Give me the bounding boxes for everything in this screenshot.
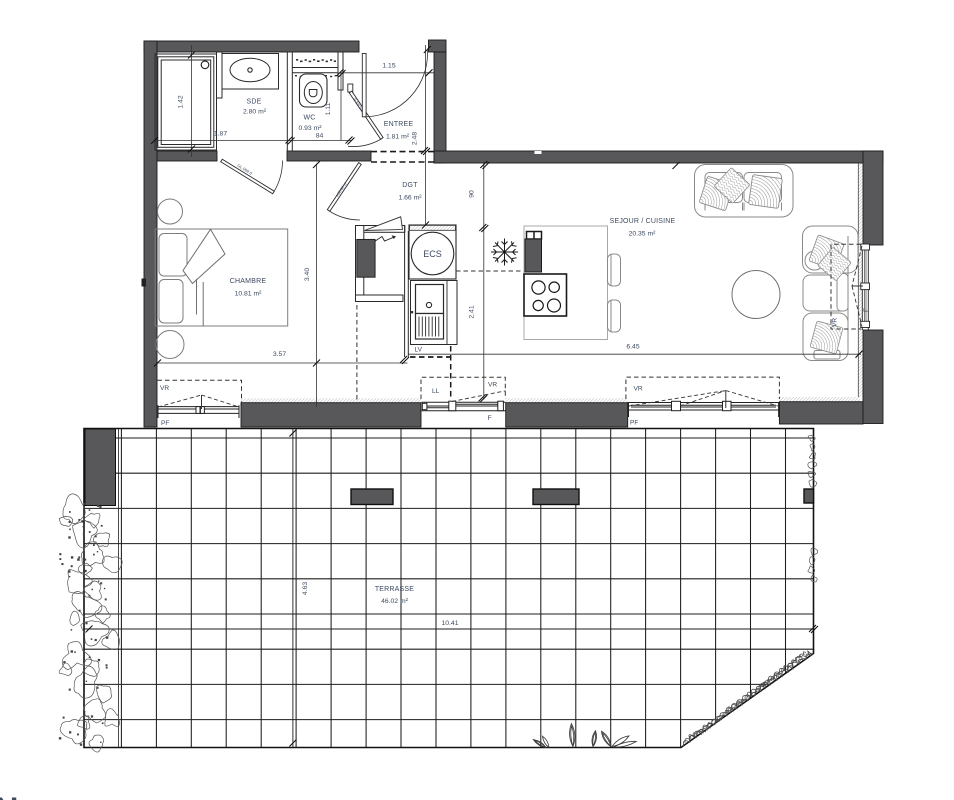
svg-text:20.35 m²: 20.35 m²	[629, 230, 657, 237]
svg-text:WC: WC	[303, 115, 315, 122]
svg-text:0.93 m²: 0.93 m²	[298, 125, 322, 132]
svg-text:SDE: SDE	[247, 99, 262, 106]
svg-text:1.87: 1.87	[214, 131, 227, 138]
svg-text:ECS: ECS	[423, 249, 442, 259]
svg-text:3.40: 3.40	[304, 268, 311, 281]
svg-text:4.63: 4.63	[302, 582, 309, 595]
svg-text:VR: VR	[160, 385, 169, 392]
svg-text:3.57: 3.57	[273, 351, 286, 358]
svg-text:10.81 m²: 10.81 m²	[235, 290, 263, 297]
svg-text:1.66 m²: 1.66 m²	[398, 195, 422, 202]
svg-text:2.48: 2.48	[412, 132, 419, 145]
svg-text:F: F	[488, 415, 492, 422]
svg-text:1.11: 1.11	[325, 102, 332, 115]
svg-text:N: N	[0, 791, 19, 800]
svg-text:LV: LV	[415, 347, 423, 354]
svg-text:F: F	[863, 308, 870, 312]
svg-text:1.15: 1.15	[382, 63, 395, 70]
svg-text:1.42: 1.42	[178, 95, 185, 108]
svg-text:90: 90	[469, 190, 476, 198]
svg-text:VR: VR	[488, 381, 497, 388]
svg-text:10.41: 10.41	[441, 620, 458, 627]
svg-text:PF: PF	[161, 420, 169, 427]
svg-text:ENTREE: ENTREE	[384, 121, 414, 128]
svg-text:2.80 m²: 2.80 m²	[243, 109, 267, 116]
svg-text:SEJOUR / CUISINE: SEJOUR / CUISINE	[610, 218, 676, 225]
svg-text:1.81 m²: 1.81 m²	[386, 133, 410, 140]
svg-text:VR: VR	[832, 318, 839, 327]
svg-text:46.02 m²: 46.02 m²	[381, 598, 409, 605]
svg-text:PF: PF	[630, 420, 638, 427]
svg-text:84: 84	[316, 133, 324, 140]
svg-text:TERRASSE: TERRASSE	[375, 586, 414, 593]
svg-text:VR: VR	[634, 386, 643, 393]
svg-text:DGT: DGT	[402, 182, 418, 189]
svg-text:6.45: 6.45	[626, 343, 639, 350]
svg-text:CHAMBRE: CHAMBRE	[230, 278, 267, 285]
svg-text:LL: LL	[432, 388, 440, 395]
svg-text:2.41: 2.41	[469, 305, 476, 318]
